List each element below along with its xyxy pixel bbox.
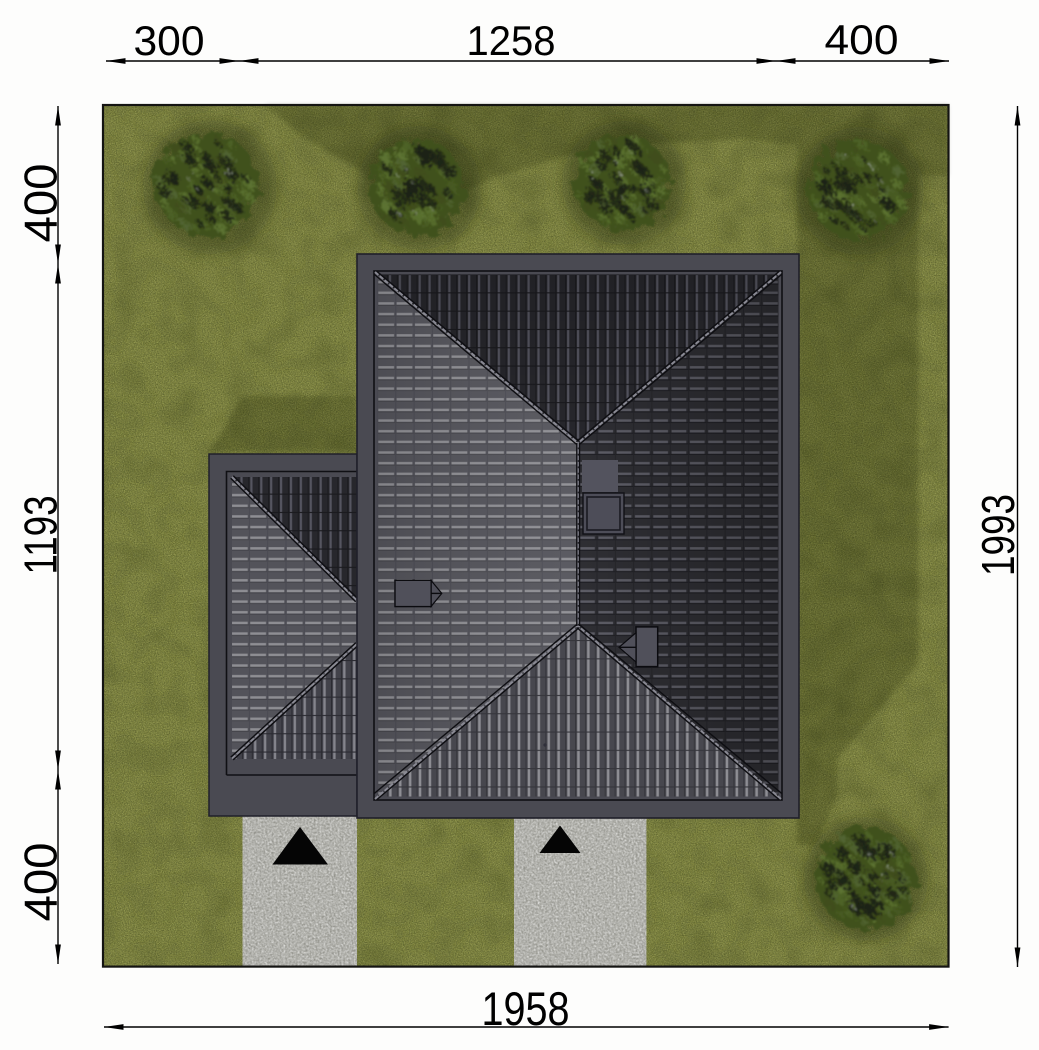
svg-text:1958: 1958 — [482, 982, 570, 1035]
svg-text:300: 300 — [134, 17, 205, 64]
svg-text:1258: 1258 — [467, 17, 556, 64]
svg-text:1193: 1193 — [15, 496, 67, 575]
svg-text:1993: 1993 — [972, 494, 1024, 576]
svg-text:400: 400 — [825, 16, 899, 63]
svg-text:400: 400 — [15, 843, 67, 922]
svg-text:400: 400 — [15, 164, 67, 243]
